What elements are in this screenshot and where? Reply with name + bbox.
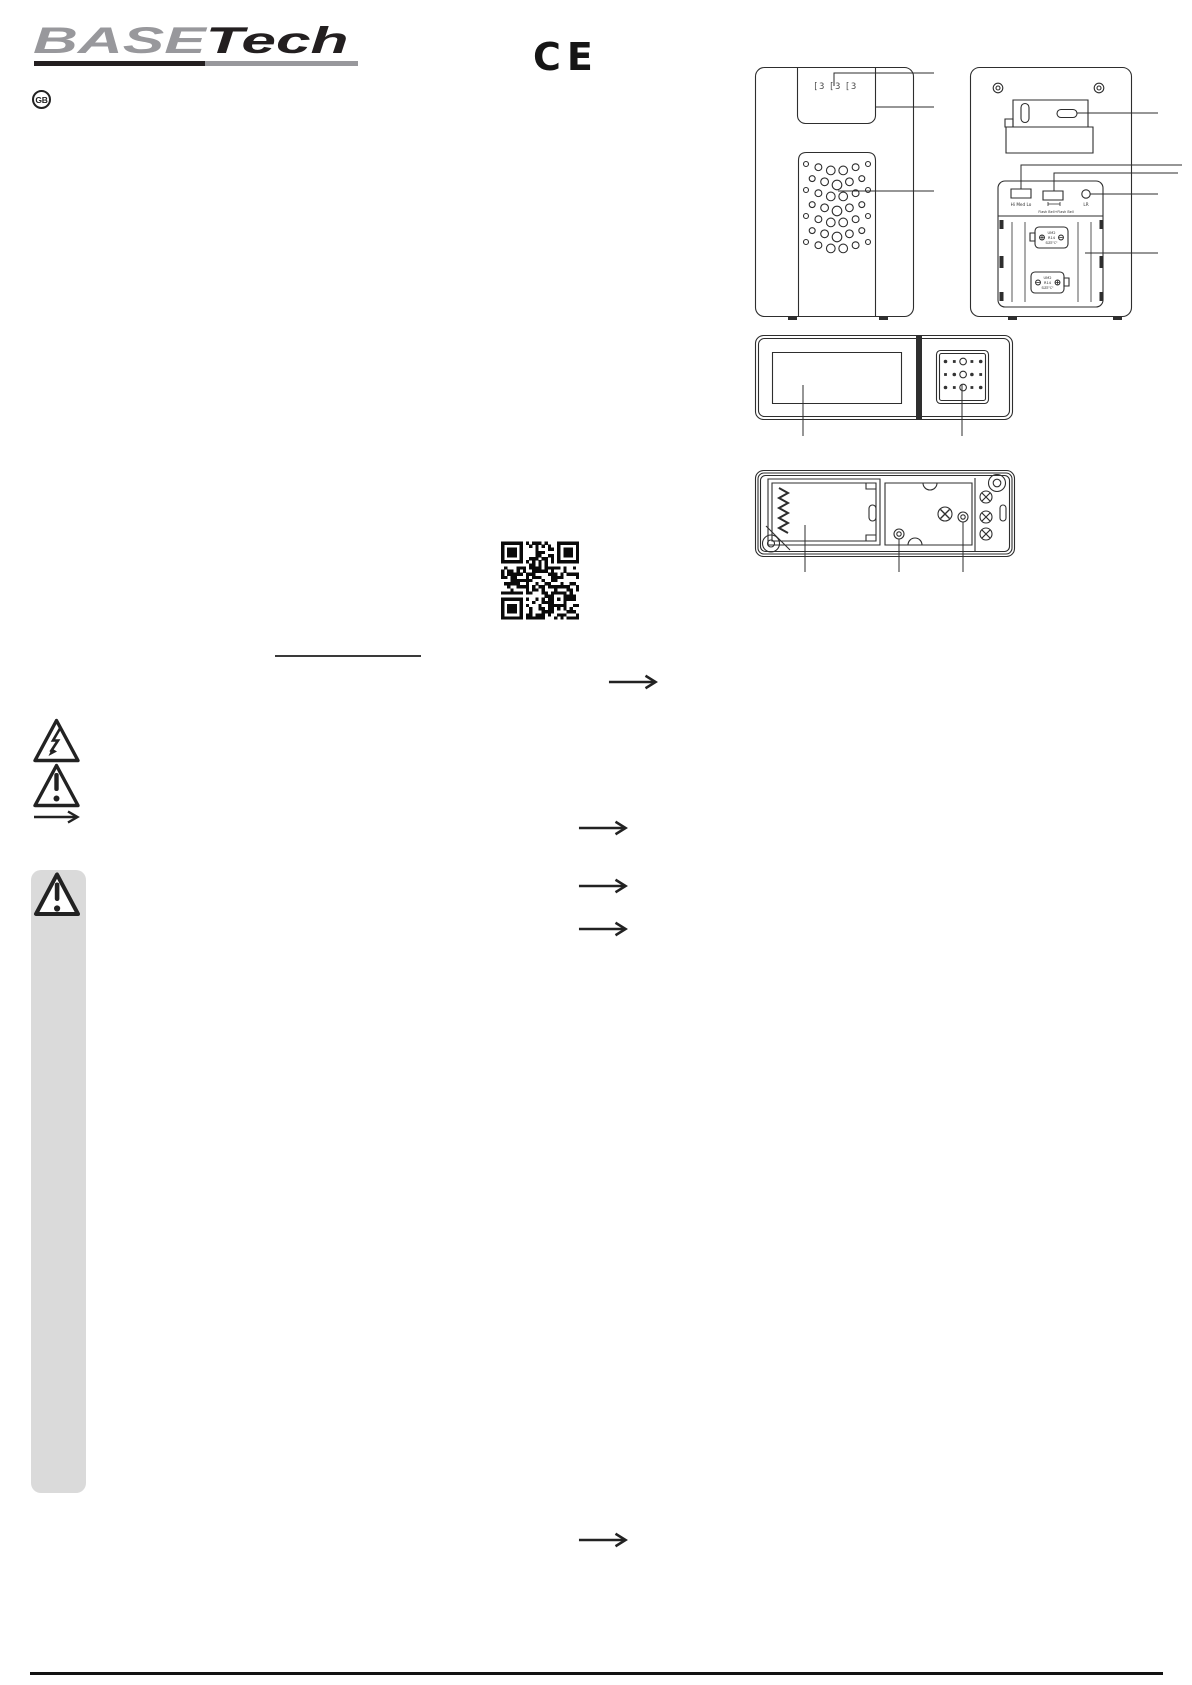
note-arrow-icon (578, 878, 628, 894)
battery-spring (779, 488, 788, 533)
brand-underline-gray (205, 61, 358, 66)
note-arrow-icon (578, 921, 628, 937)
receiver-front-diagram: [3 [3 [3 (756, 68, 935, 319)
battery-contact (869, 505, 876, 521)
pushbutton-grille-holes (944, 358, 983, 391)
qr-code-grid (501, 542, 579, 620)
mounting-screw-holes (993, 83, 1104, 93)
bell-push-button (773, 353, 902, 404)
brand-logo-base: BASE (33, 20, 206, 61)
learn-adjust (894, 529, 904, 539)
terminal-block (975, 475, 1006, 552)
electric-hazard-icon (35, 721, 78, 761)
important-note-sidebar (31, 870, 86, 1493)
receiver-back-diagram: Hi Med Lo Flash Bell+Flash Bell LR (971, 68, 1183, 319)
wall-bracket (1005, 100, 1093, 153)
link-underline-rule (275, 655, 421, 657)
pushbutton-divider (916, 336, 922, 420)
volume-switch-label: Hi Med Lo (1011, 202, 1032, 207)
brand-logo-underline (34, 61, 358, 66)
pushbutton-front-diagram (756, 336, 1013, 437)
language-badge-gb: GB (32, 90, 51, 109)
battery-1: UM2 R14 SIZE"C" (1030, 227, 1068, 248)
mode-switch-label: Flash Bell+Flash Bell (1038, 210, 1073, 214)
device-diagrams: [3 [3 [3 (700, 55, 1192, 585)
volume-adjust (958, 512, 968, 522)
pushbutton-housing (756, 336, 1013, 420)
battery1-label-2: R14 (1048, 236, 1056, 240)
receiver-front-housing (756, 68, 914, 317)
battery1-label-3: SIZE"C" (1046, 241, 1059, 245)
ce-mark: CE (533, 38, 599, 76)
learn-button-label: LR (1083, 202, 1088, 207)
manual-page: BASETech GB CE [3 [3 [3 (0, 0, 1192, 1685)
qr-code (501, 541, 579, 620)
battery1-label-1: UM2 (1047, 231, 1055, 235)
battery2-label-3: SIZE"C" (1042, 286, 1055, 290)
receiver-display-panel (798, 68, 876, 124)
pushbutton-pcb (885, 483, 972, 545)
pushbutton-front-callouts (803, 385, 962, 436)
warning-triangle-icon (35, 766, 78, 806)
note-arrow-small-icon (34, 812, 78, 823)
battery-2: UM2 R14 SIZE"C" (1031, 272, 1069, 293)
safety-icon-column (25, 712, 89, 830)
receiver-display-segments: [3 [3 [3 (814, 82, 858, 92)
battery2-label-2: R14 (1044, 281, 1052, 285)
brand-logo: BASETech (33, 22, 348, 59)
volume-switch (1011, 189, 1031, 198)
pushbutton-battery-box (768, 479, 880, 545)
receiver-speaker-holes (804, 162, 871, 253)
note-arrow-icon (578, 1532, 628, 1548)
language-badge-label: GB (35, 95, 47, 105)
note-arrow-icon (578, 820, 628, 836)
pushbutton-open-diagram (756, 471, 1015, 573)
battery2-label-1: UM2 (1043, 276, 1051, 280)
note-arrow-icon (608, 674, 658, 690)
mode-switch-ticks (1048, 202, 1060, 206)
case-screw (763, 526, 791, 552)
important-warning-triangle-icon (30, 868, 86, 920)
brand-logo-tech: Tech (206, 20, 349, 61)
footer-rule (30, 1672, 1163, 1675)
pushbutton-open-callouts (805, 522, 963, 572)
battery-bay: UM2 R14 SIZE"C" UM2 R14 SIZE"C" (1000, 220, 1104, 302)
brand-underline-dark (34, 61, 205, 66)
learn-button (1082, 190, 1090, 198)
mode-switch (1043, 191, 1063, 200)
